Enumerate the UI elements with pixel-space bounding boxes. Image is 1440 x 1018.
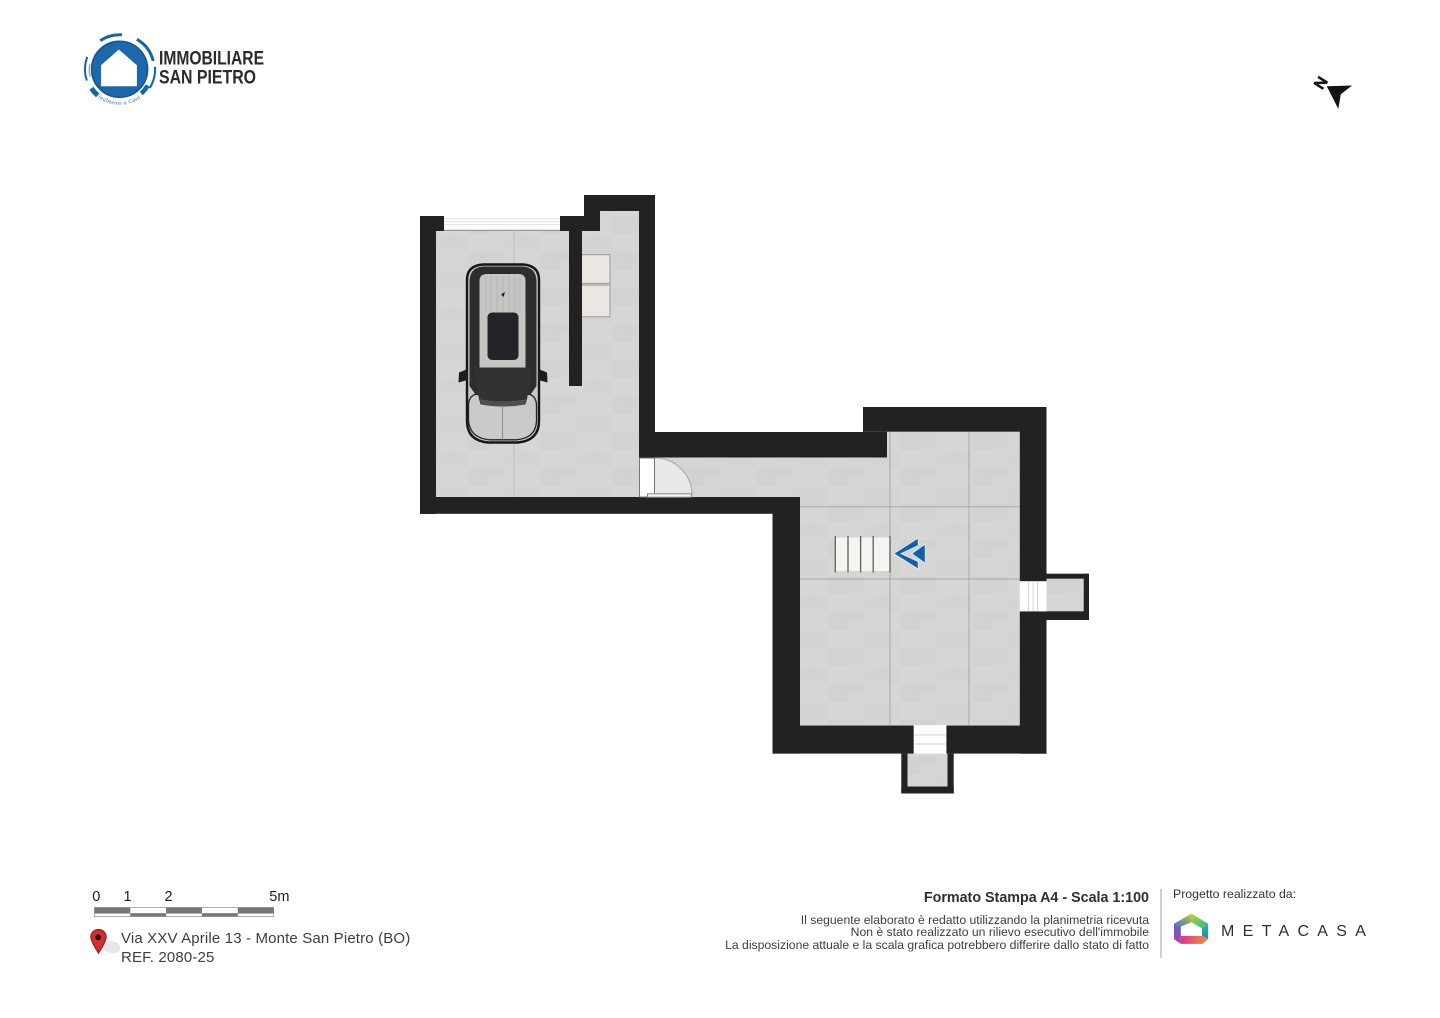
svg-text:SAN PIETRO: SAN PIETRO [159,67,256,88]
svg-text:IMMOBILIARE: IMMOBILIARE [159,48,264,69]
